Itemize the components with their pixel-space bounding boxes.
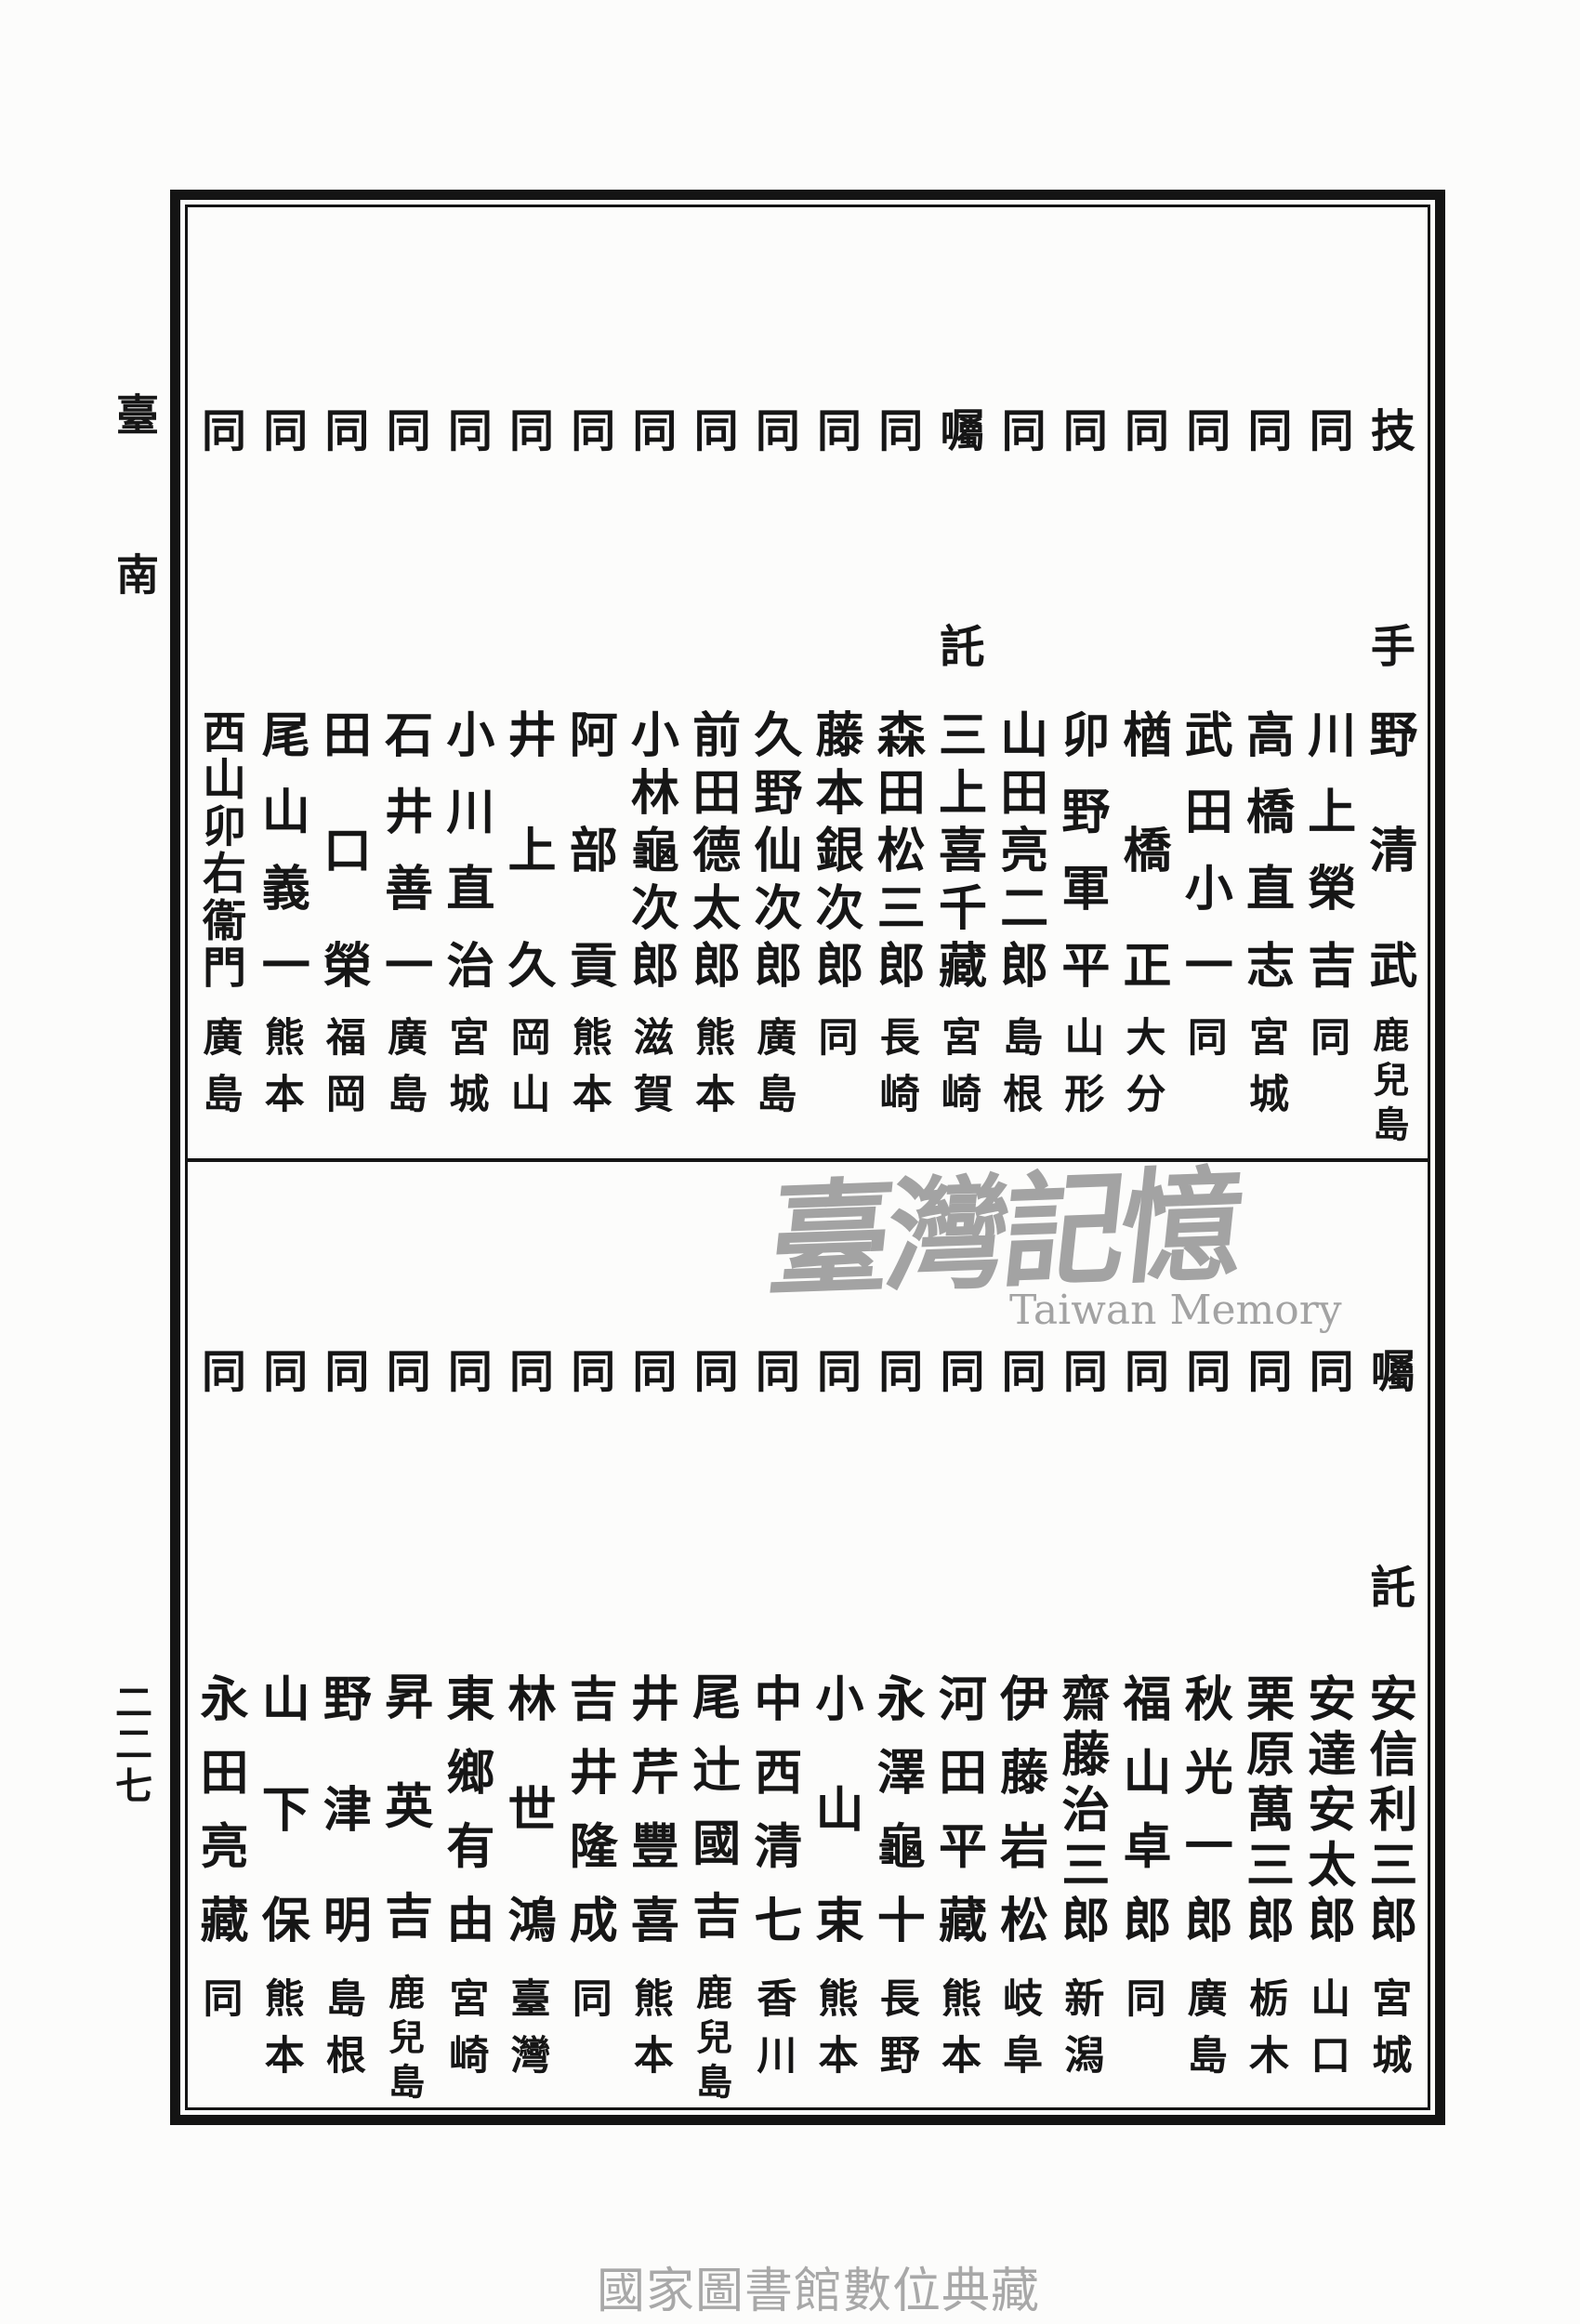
person-name: 栗原萬三郎 xyxy=(1235,1673,1295,1943)
origin-prefecture-label: 宮城 xyxy=(1235,1016,1295,1129)
registry-column: 同井芹豐喜熊本 xyxy=(620,1162,679,2107)
registry-column: 同川上榮吉同 xyxy=(1297,207,1357,1158)
role-label: 同 xyxy=(497,1348,557,1608)
origin-prefecture-label: 宮城 xyxy=(436,1016,495,1129)
origin-prefecture-label: 山口 xyxy=(1297,1977,1357,2091)
origin-prefecture-label: 岡山 xyxy=(497,1016,557,1129)
person-name: 秋光一郎 xyxy=(1174,1673,1233,1943)
origin-prefecture-label: 岐阜 xyxy=(990,1977,1049,2091)
role-label: 同 xyxy=(805,407,864,667)
origin-prefecture-label: 島根 xyxy=(990,1016,1049,1129)
role-label: 同 xyxy=(375,407,434,667)
origin-prefecture-label: 同 xyxy=(1297,1016,1357,1073)
origin-prefecture-label: 宮崎 xyxy=(928,1016,987,1129)
person-name: 伊藤岩松 xyxy=(990,1673,1049,1943)
origin-prefecture-label: 同 xyxy=(805,1016,864,1073)
origin-prefecture-label: 同 xyxy=(190,1977,249,2034)
origin-prefecture-label: 栃木 xyxy=(1235,1977,1295,2091)
origin-prefecture-label: 滋賀 xyxy=(620,1016,679,1129)
origin-prefecture-label: 熊本 xyxy=(620,1977,679,2091)
origin-prefecture-label: 熊本 xyxy=(928,1977,987,2091)
role-label: 同 xyxy=(805,1348,864,1608)
registry-column: 同田口榮福岡 xyxy=(312,207,372,1158)
role-label: 同 xyxy=(1113,407,1172,667)
registry-column: 同楢橋正大分 xyxy=(1113,207,1172,1158)
registry-column: 同野津明島根 xyxy=(312,1162,372,2107)
registry-column: 囑託安信利三郎宮城 xyxy=(1359,1162,1418,2107)
registry-column: 同山下保熊本 xyxy=(251,1162,310,2107)
person-name: 三上喜千藏 xyxy=(928,709,987,988)
origin-prefecture-label: 長崎 xyxy=(866,1016,926,1129)
role-label: 技手 xyxy=(1359,407,1418,667)
registry-column: 技手野清武鹿兒島 xyxy=(1359,207,1418,1158)
role-label: 同 xyxy=(190,1348,249,1608)
person-name: 小林龜次郎 xyxy=(620,709,679,988)
registry-top-section: 技手野清武鹿兒島同川上榮吉同同高橋直志宮城同武田小一同同楢橋正大分同卯野軍平山形… xyxy=(188,207,1428,1158)
person-name: 山田亮二郎 xyxy=(990,709,1049,988)
origin-prefecture-label: 鹿兒島 xyxy=(682,1974,742,2107)
origin-prefecture-label: 廣島 xyxy=(375,1016,434,1129)
origin-prefecture-label: 新潟 xyxy=(1051,1977,1111,2091)
origin-prefecture-label: 熊本 xyxy=(559,1016,618,1129)
role-label: 同 xyxy=(251,407,310,667)
role-label: 同 xyxy=(559,1348,618,1608)
role-label: 同 xyxy=(251,1348,310,1608)
role-label: 同 xyxy=(1051,1348,1111,1608)
origin-prefecture-label: 廣島 xyxy=(744,1016,803,1129)
role-label: 同 xyxy=(928,1348,987,1608)
registry-column: 同卯野軍平山形 xyxy=(1051,207,1111,1158)
registry-column: 同石井善一廣島 xyxy=(375,207,434,1158)
origin-prefecture-label: 福岡 xyxy=(312,1016,372,1129)
role-label: 同 xyxy=(559,407,618,667)
person-name: 福山卓郎 xyxy=(1113,1673,1172,1943)
person-name: 吉井隆成 xyxy=(559,1673,618,1943)
origin-prefecture-label: 同 xyxy=(1174,1016,1233,1073)
registry-column: 同井上久岡山 xyxy=(497,207,557,1158)
registry-column: 同尾山義一熊本 xyxy=(251,207,310,1158)
role-label: 同 xyxy=(990,407,1049,667)
role-label: 同 xyxy=(1235,407,1295,667)
role-label: 同 xyxy=(436,407,495,667)
registry-column: 同久野仙次郎廣島 xyxy=(744,207,803,1158)
person-name: 武田小一 xyxy=(1174,709,1233,988)
person-name: 森田松三郎 xyxy=(866,709,926,988)
origin-prefecture-label: 臺灣 xyxy=(497,1977,557,2091)
role-label: 同 xyxy=(312,407,372,667)
role-label: 同 xyxy=(620,1348,679,1608)
role-label: 囑託 xyxy=(1359,1348,1418,1608)
origin-prefecture-label: 熊本 xyxy=(682,1016,742,1129)
registry-column: 同武田小一同 xyxy=(1174,207,1233,1158)
registry-column: 同山田亮二郎島根 xyxy=(990,207,1049,1158)
role-label: 同 xyxy=(1174,407,1233,667)
person-name: 井芹豐喜 xyxy=(620,1673,679,1943)
person-name: 野津明 xyxy=(312,1673,372,1943)
role-label: 同 xyxy=(744,1348,803,1608)
person-name: 久野仙次郎 xyxy=(744,709,803,988)
taiwan-memory-watermark-latin: Taiwan Memory xyxy=(1009,1287,1342,1334)
person-name: 昇英吉 xyxy=(375,1671,434,1939)
role-label: 同 xyxy=(990,1348,1049,1608)
page-number: 二二七 xyxy=(110,1683,151,1808)
origin-prefecture-label: 島根 xyxy=(312,1977,372,2091)
person-name: 東鄉有由 xyxy=(436,1673,495,1943)
role-label: 同 xyxy=(1297,1348,1357,1608)
registry-column: 同藤本銀次郎同 xyxy=(805,207,864,1158)
registry-column: 同前田德太郎熊本 xyxy=(682,207,742,1158)
person-name: 楢橋正 xyxy=(1113,709,1172,988)
person-name: 小山束 xyxy=(805,1673,864,1943)
person-name: 安信利三郎 xyxy=(1359,1673,1418,1943)
role-label: 同 xyxy=(436,1348,495,1608)
person-name: 藤本銀次郎 xyxy=(805,709,864,988)
person-name: 尾辻國吉 xyxy=(682,1671,742,1939)
role-label: 同 xyxy=(497,407,557,667)
role-label: 同 xyxy=(866,1348,926,1608)
origin-prefecture-label: 熊本 xyxy=(251,1977,310,2091)
person-name: 西山卯右衞門 xyxy=(190,709,249,988)
role-label: 同 xyxy=(744,407,803,667)
role-label: 同 xyxy=(190,407,249,667)
origin-prefecture-label: 宮崎 xyxy=(436,1977,495,2091)
registry-column: 同西山卯右衞門廣島 xyxy=(190,207,249,1158)
registry-column: 同高橋直志宮城 xyxy=(1235,207,1295,1158)
person-name: 石井善一 xyxy=(375,709,434,988)
person-name: 永田亮藏 xyxy=(190,1673,249,1943)
registry-column: 同小林龜次郎滋賀 xyxy=(620,207,679,1158)
person-name: 中西清七 xyxy=(744,1673,803,1943)
registry-column: 同森田松三郎長崎 xyxy=(866,207,926,1158)
role-label: 同 xyxy=(682,407,742,667)
role-label: 同 xyxy=(1235,1348,1295,1608)
role-label: 同 xyxy=(620,407,679,667)
person-name: 安達安太郎 xyxy=(1297,1673,1357,1943)
person-name: 林世鴻 xyxy=(497,1673,557,1943)
registry-column: 同吉井隆成同 xyxy=(559,1162,618,2107)
origin-prefecture-label: 廣島 xyxy=(1174,1977,1233,2091)
role-label: 同 xyxy=(1297,407,1357,667)
person-name: 野清武 xyxy=(1359,709,1418,988)
person-name: 井上久 xyxy=(497,709,557,988)
person-name: 高橋直志 xyxy=(1235,709,1295,988)
origin-prefecture-label: 熊本 xyxy=(251,1016,310,1129)
role-label: 囑託 xyxy=(928,407,987,667)
registry-column: 同小川直治宮城 xyxy=(436,207,495,1158)
person-name: 卯野軍平 xyxy=(1051,709,1111,988)
registry-column: 同林世鴻臺灣 xyxy=(497,1162,557,2107)
role-label: 同 xyxy=(1051,407,1111,667)
registry-column: 同東鄉有由宮崎 xyxy=(436,1162,495,2107)
registry-column: 同尾辻國吉鹿兒島 xyxy=(682,1162,742,2107)
region-margin-label: 臺南 xyxy=(112,392,158,712)
origin-prefecture-label: 長野 xyxy=(866,1977,926,2091)
role-label: 同 xyxy=(375,1348,434,1606)
archive-footer-caption: 國家圖書館數位典藏 xyxy=(597,2251,1040,2321)
role-label: 同 xyxy=(1113,1348,1172,1608)
origin-prefecture-label: 同 xyxy=(559,1977,618,2034)
registry-column: 同永田亮藏同 xyxy=(190,1162,249,2107)
origin-prefecture-label: 同 xyxy=(1113,1977,1172,2034)
person-name: 小川直治 xyxy=(436,709,495,988)
origin-prefecture-label: 大分 xyxy=(1113,1016,1172,1129)
registry-column: 同阿部貢熊本 xyxy=(559,207,618,1158)
origin-prefecture-label: 山形 xyxy=(1051,1016,1111,1129)
role-label: 同 xyxy=(682,1348,742,1606)
role-label: 同 xyxy=(312,1348,372,1608)
origin-prefecture-label: 熊本 xyxy=(805,1977,864,2091)
origin-prefecture-label: 宮城 xyxy=(1359,1977,1418,2091)
registry-column: 同昇英吉鹿兒島 xyxy=(375,1162,434,2107)
person-name: 阿部貢 xyxy=(559,709,618,988)
person-name: 山下保 xyxy=(251,1673,310,1943)
role-label: 同 xyxy=(1174,1348,1233,1608)
person-name: 齋藤治三郎 xyxy=(1051,1673,1111,1943)
origin-prefecture-label: 鹿兒島 xyxy=(1359,1016,1418,1150)
origin-prefecture-label: 鹿兒島 xyxy=(375,1974,434,2107)
person-name: 田口榮 xyxy=(312,709,372,988)
person-name: 川上榮吉 xyxy=(1297,709,1357,988)
person-name: 尾山義一 xyxy=(251,709,310,988)
origin-prefecture-label: 香川 xyxy=(744,1977,803,2091)
origin-prefecture-label: 廣島 xyxy=(190,1016,249,1129)
role-label: 同 xyxy=(866,407,926,667)
person-name: 河田平藏 xyxy=(928,1673,987,1943)
registry-column: 囑託三上喜千藏宮崎 xyxy=(928,207,987,1158)
person-name: 前田德太郎 xyxy=(682,709,742,988)
person-name: 永澤龜十 xyxy=(866,1673,926,1943)
